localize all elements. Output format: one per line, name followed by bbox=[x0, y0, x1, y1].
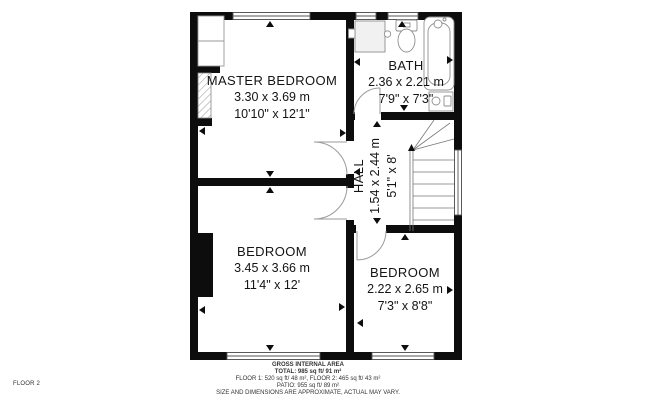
toilet-icon bbox=[396, 20, 417, 52]
room-name: BATH bbox=[368, 57, 444, 74]
room-label-bath: BATH 2.36 x 2.21 m 7'9" x 7'3" bbox=[368, 57, 444, 107]
room-dims-metric: 2.36 x 2.21 m bbox=[368, 74, 444, 91]
wardrobe-icon bbox=[198, 16, 224, 66]
window-bath-2 bbox=[388, 13, 418, 20]
room-dims-imperial: 7'3" x 8'8" bbox=[367, 298, 443, 315]
window-bath-1 bbox=[356, 13, 376, 20]
room-dims-imperial: 11'4" x 12' bbox=[234, 277, 310, 294]
room-label-master-bedroom: MASTER BEDROOM 3.30 x 3.69 m 10'10" x 12… bbox=[207, 72, 338, 122]
room-dims-imperial: 7'9" x 7'3" bbox=[368, 91, 444, 108]
room-label-hall: HALL 1.54 x 2.44 m 5'1" x 8' bbox=[350, 138, 400, 214]
area-summary: GROSS INTERNAL AREA TOTAL: 985 sq ft/ 91… bbox=[216, 362, 400, 397]
stairs-icon bbox=[408, 120, 454, 231]
floorplan-graphic bbox=[0, 0, 650, 406]
vanity-sink-icon bbox=[355, 21, 391, 52]
room-label-bedroom2: BEDROOM 2.22 x 2.65 m 7'3" x 8'8" bbox=[367, 264, 443, 314]
door-master-bedroom bbox=[314, 142, 347, 175]
window-bedroom1-bottom bbox=[227, 353, 320, 360]
room-dims-imperial: 10'10" x 12'1" bbox=[207, 106, 338, 123]
area-patio: PATIO: 955 sq ft/ 89 m² bbox=[216, 383, 400, 390]
room-dims-metric: 2.22 x 2.65 m bbox=[367, 281, 443, 298]
room-dims-metric: 3.45 x 3.66 m bbox=[234, 260, 310, 277]
chimney-breast bbox=[198, 233, 213, 297]
window-stairs-right bbox=[455, 150, 462, 215]
floorplan-page: MASTER BEDROOM 3.30 x 3.69 m 10'10" x 12… bbox=[0, 0, 650, 406]
door-bedroom2 bbox=[357, 231, 386, 260]
room-dims-metric: 1.54 x 2.44 m bbox=[367, 138, 384, 214]
stairs-direction-arrow bbox=[408, 144, 415, 151]
door-bedroom1 bbox=[314, 186, 347, 219]
room-name: BEDROOM bbox=[367, 264, 443, 281]
radiator-icon bbox=[349, 29, 356, 38]
room-dims-imperial: 5'1" x 8' bbox=[384, 138, 401, 214]
area-disclaimer: SIZE AND DIMENSIONS ARE APPROXIMATE, ACT… bbox=[216, 390, 400, 397]
room-label-bedroom1: BEDROOM 3.45 x 3.66 m 11'4" x 12' bbox=[234, 243, 310, 293]
window-master-top bbox=[233, 13, 310, 20]
room-name: MASTER BEDROOM bbox=[207, 72, 338, 89]
floor-number-label: FLOOR 2 bbox=[13, 381, 40, 387]
room-dims-metric: 3.30 x 3.69 m bbox=[207, 89, 338, 106]
area-total: TOTAL: 985 sq ft/ 91 m² bbox=[216, 369, 400, 376]
window-bedroom2-bottom bbox=[372, 353, 434, 360]
area-floors: FLOOR 1: 520 sq ft/ 48 m², FLOOR 2: 465 … bbox=[216, 376, 400, 383]
room-name: BEDROOM bbox=[234, 243, 310, 260]
room-name: HALL bbox=[350, 138, 367, 214]
